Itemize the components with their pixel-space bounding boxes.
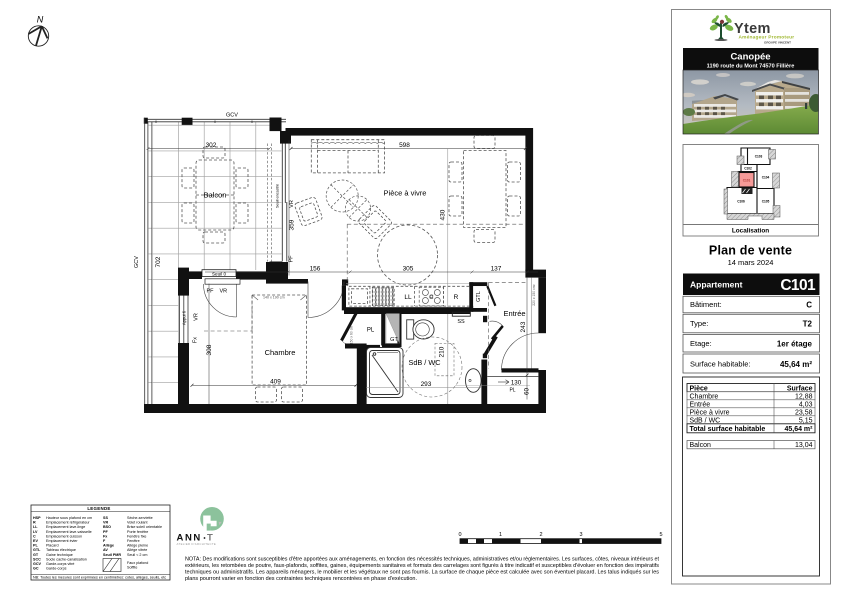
- svg-text:45,64 m²: 45,64 m²: [780, 360, 812, 369]
- svg-text:5,15: 5,15: [799, 417, 813, 424]
- svg-text:R: R: [454, 294, 459, 301]
- svg-text:Surface habitable:: Surface habitable:: [690, 360, 750, 369]
- svg-text:N: N: [37, 15, 44, 25]
- svg-text:C106: C106: [737, 200, 745, 204]
- svg-text:SS: SS: [103, 516, 108, 520]
- svg-text:305: 305: [403, 265, 414, 272]
- svg-text:Placard: Placard: [46, 544, 59, 548]
- svg-text:2: 2: [539, 532, 542, 538]
- svg-text:PF: PF: [289, 255, 295, 263]
- svg-text:SdB / WC: SdB / WC: [408, 358, 440, 367]
- svg-text:210: 210: [439, 346, 446, 357]
- svg-text:NB: Toutes les mesures sont ex: NB: Toutes les mesures sont exprimées en…: [33, 576, 166, 580]
- svg-text:Balcon: Balcon: [690, 442, 712, 449]
- svg-text:Entrée: Entrée: [690, 401, 711, 408]
- svg-text:PL: PL: [367, 328, 375, 334]
- svg-text:Type:: Type:: [690, 319, 708, 328]
- svg-text:R: R: [33, 521, 36, 525]
- svg-text:C101: C101: [780, 277, 816, 294]
- svg-text:C101: C101: [743, 179, 751, 183]
- svg-text:1190 route du Mont 74570 Filli: 1190 route du Mont 74570 Fillière: [707, 63, 795, 69]
- svg-text:Seuil < 2 cm: Seuil < 2 cm: [127, 553, 147, 557]
- svg-text:Emplacement lave-vaisselle: Emplacement lave-vaisselle: [46, 530, 92, 534]
- svg-text:430: 430: [440, 209, 447, 220]
- svg-text:GT: GT: [390, 337, 398, 343]
- svg-text:LEGENDE: LEGENDE: [87, 506, 110, 511]
- svg-text:Volet roulant: Volet roulant: [127, 521, 148, 525]
- svg-text:SCC: SCC: [33, 557, 41, 561]
- svg-text:Soffite: Soffite: [127, 566, 137, 570]
- svg-text:Etage:: Etage:: [690, 339, 712, 348]
- svg-text:4,03: 4,03: [799, 401, 813, 408]
- svg-text:Plan de vente: Plan de vente: [709, 244, 792, 258]
- svg-text:LL: LL: [33, 525, 38, 529]
- svg-text:PL: PL: [33, 544, 38, 548]
- svg-text:Fenêtre fixe: Fenêtre fixe: [127, 534, 146, 538]
- svg-text:Pièce à vivre: Pièce à vivre: [690, 409, 730, 416]
- svg-text:Fenêtre: Fenêtre: [127, 539, 140, 543]
- svg-text:SS: SS: [457, 319, 465, 325]
- svg-text:Emplacement lave-linge: Emplacement lave-linge: [46, 525, 85, 529]
- svg-text:Emplacement réfrigérateur: Emplacement réfrigérateur: [46, 521, 90, 525]
- svg-text:C102: C102: [744, 166, 752, 170]
- svg-text:Chambre: Chambre: [690, 393, 719, 400]
- svg-text:PF: PF: [207, 288, 215, 294]
- svg-text:Entrée: Entrée: [503, 309, 525, 318]
- svg-text:140 x 190 cm: 140 x 190 cm: [263, 296, 285, 300]
- svg-text:23,58: 23,58: [795, 409, 813, 416]
- svg-text:Socle cache-canalisation: Socle cache-canalisation: [46, 557, 87, 561]
- svg-text:Allège pleine: Allège pleine: [127, 544, 148, 548]
- svg-text:14 mars 2024: 14 mars 2024: [728, 258, 774, 267]
- svg-text:Emplacement évier: Emplacement évier: [46, 539, 78, 543]
- svg-text:Gaine technique: Gaine technique: [46, 553, 73, 557]
- svg-text:1: 1: [499, 532, 502, 538]
- svg-text:C: C: [33, 534, 36, 538]
- svg-text:GROUPE VINCENT: GROUPE VINCENT: [764, 41, 791, 45]
- svg-text:12,88: 12,88: [795, 393, 813, 400]
- svg-text:BSO: BSO: [103, 525, 111, 529]
- svg-text:156: 156: [310, 265, 321, 272]
- svg-text:GCV: GCV: [33, 562, 42, 566]
- svg-text:VR: VR: [103, 521, 108, 525]
- svg-text:LL: LL: [404, 294, 412, 301]
- svg-text:Localisation: Localisation: [732, 228, 769, 235]
- svg-text:C103: C103: [755, 155, 763, 159]
- svg-text:EV: EV: [33, 539, 38, 543]
- svg-text:Surface: Surface: [787, 385, 813, 392]
- svg-text:150 x 60 cm: 150 x 60 cm: [350, 326, 354, 345]
- svg-text:220 x 150 cm²: 220 x 150 cm²: [532, 283, 536, 305]
- svg-text:302: 302: [206, 142, 217, 149]
- svg-text:Brise soleil orientable: Brise soleil orientable: [127, 525, 162, 529]
- svg-text:GCV: GCV: [226, 113, 238, 119]
- svg-text:Allège vitrée: Allège vitrée: [127, 548, 147, 552]
- svg-text:13,04: 13,04: [795, 442, 813, 449]
- svg-text:Garde-corps vitré: Garde-corps vitré: [46, 562, 75, 566]
- svg-text:1er étage: 1er étage: [777, 340, 813, 349]
- svg-text:Hauteur sous plafond en cm: Hauteur sous plafond en cm: [46, 516, 92, 520]
- svg-text:702: 702: [155, 256, 162, 267]
- svg-text:techniques ou administratifs.: techniques ou administratifs. Les appare…: [185, 570, 659, 576]
- svg-text:NOTA: Des modifications sont s: NOTA: Des modifications sont susceptible…: [185, 557, 660, 563]
- svg-text:Seuil PMR: Seuil PMR: [103, 553, 121, 557]
- svg-text:GT: GT: [33, 553, 39, 557]
- svg-text:HSP: HSP: [33, 516, 41, 520]
- svg-text:VR: VR: [289, 200, 295, 208]
- svg-text:VR: VR: [220, 288, 228, 294]
- svg-text:598: 598: [399, 142, 410, 149]
- svg-text:GCV: GCV: [134, 256, 140, 268]
- svg-text:C104: C104: [762, 176, 770, 180]
- svg-text:45,64 m²: 45,64 m²: [784, 426, 813, 433]
- svg-text:SdB / WC: SdB / WC: [690, 417, 721, 424]
- svg-text:60: 60: [524, 388, 531, 395]
- svg-text:308: 308: [206, 344, 213, 355]
- svg-text:Total surface habitable: Total surface habitable: [690, 426, 766, 433]
- svg-text:Chambre: Chambre: [265, 348, 296, 357]
- svg-text:3: 3: [579, 532, 582, 538]
- svg-text:T2: T2: [803, 320, 813, 329]
- svg-text:0: 0: [458, 532, 461, 538]
- svg-text:130: 130: [511, 380, 522, 387]
- svg-text:5: 5: [659, 532, 662, 538]
- svg-text:GTL: GTL: [476, 291, 482, 302]
- svg-text:plans pourront varier en fonct: plans pourront varier en fonction des co…: [185, 576, 417, 582]
- svg-text:C105: C105: [762, 200, 770, 204]
- svg-text:359: 359: [289, 219, 296, 230]
- svg-text:Appartement: Appartement: [690, 280, 743, 290]
- svg-text:Canopée: Canopée: [730, 52, 770, 63]
- svg-text:Allège: Allège: [103, 544, 114, 548]
- svg-text:Emplacement cuisson: Emplacement cuisson: [46, 534, 82, 538]
- svg-text:C: C: [429, 294, 434, 301]
- svg-text:extérieurs, les retombées de p: extérieurs, les retombées de poutre, fau…: [185, 563, 659, 569]
- svg-text:Appui 6: Appui 6: [182, 310, 187, 325]
- svg-text:LV: LV: [33, 530, 38, 534]
- svg-text:Porte fenêtre: Porte fenêtre: [127, 530, 148, 534]
- svg-text:Garde-corps: Garde-corps: [46, 567, 67, 571]
- svg-text:GTL: GTL: [33, 548, 41, 552]
- svg-text:GC: GC: [33, 567, 39, 571]
- svg-text:Tableau électrique: Tableau électrique: [46, 548, 76, 552]
- svg-text:137: 137: [491, 265, 502, 272]
- svg-text:293: 293: [421, 381, 432, 388]
- svg-text:Faux plafond: Faux plafond: [127, 561, 148, 565]
- svg-text:Balcon: Balcon: [204, 191, 227, 200]
- svg-text:ATELIER D'ARCHITECTE: ATELIER D'ARCHITECTE: [177, 542, 217, 546]
- svg-text:VR: VR: [194, 313, 200, 321]
- svg-text:Pièce à vivre: Pièce à vivre: [384, 189, 427, 198]
- svg-text:Fx: Fx: [193, 337, 199, 343]
- svg-text:Bâtiment:: Bâtiment:: [690, 300, 722, 309]
- svg-text:243: 243: [520, 321, 527, 332]
- svg-text:C: C: [806, 301, 812, 310]
- svg-text:PF: PF: [103, 530, 108, 534]
- svg-text:PL: PL: [509, 387, 515, 393]
- svg-text:Seuil encastré: Seuil encastré: [276, 184, 280, 208]
- svg-text:AV: AV: [103, 548, 108, 552]
- svg-text:Pièce: Pièce: [690, 385, 708, 392]
- svg-text:409: 409: [270, 378, 281, 385]
- svg-text:Sèche-serviette: Sèche-serviette: [127, 516, 153, 520]
